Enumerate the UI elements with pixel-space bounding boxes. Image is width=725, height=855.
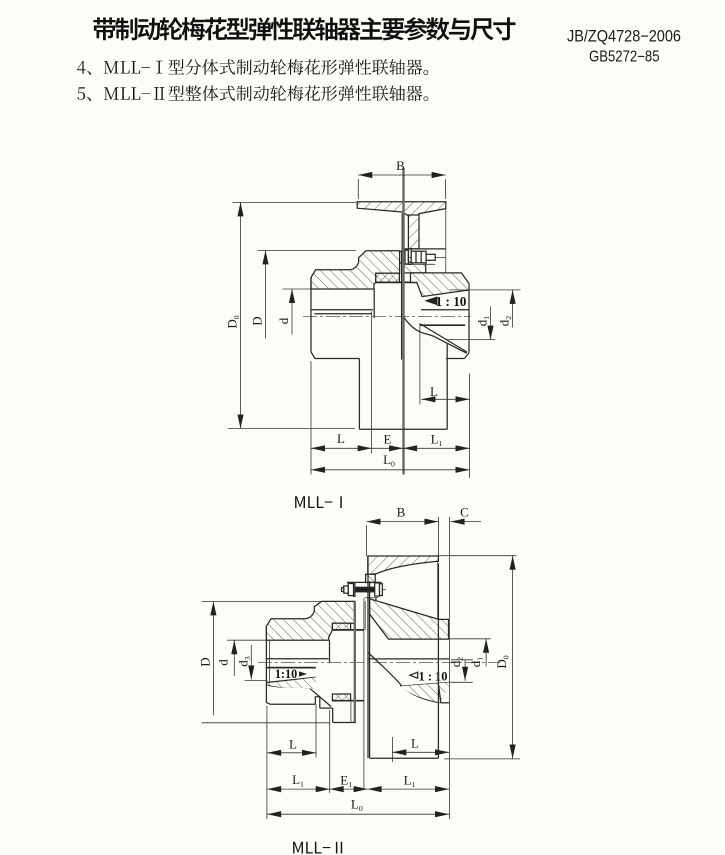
svg-text:1 : 10: 1 : 10 [436, 294, 467, 309]
svg-text:L1: L1 [292, 772, 304, 789]
svg-text:GB5272−85: GB5272−85 [589, 48, 660, 65]
svg-text:C: C [460, 505, 469, 520]
svg-text:d2: d2 [448, 657, 465, 668]
svg-text:L0: L0 [383, 452, 395, 469]
svg-text:D: D [250, 316, 265, 325]
svg-text:L0: L0 [351, 797, 363, 814]
svg-text:D0: D0 [494, 655, 511, 668]
svg-text:1 : 10: 1 : 10 [419, 670, 448, 684]
svg-text:L: L [411, 735, 419, 750]
svg-text:d: d [276, 317, 291, 324]
svg-text:B: B [397, 505, 406, 520]
svg-text:D0: D0 [225, 315, 242, 328]
svg-text:D: D [198, 657, 213, 666]
svg-text:B: B [396, 158, 405, 173]
svg-text:1:10: 1:10 [275, 667, 297, 681]
svg-text:d: d [215, 659, 230, 666]
svg-text:JB/ZQ4728−2006: JB/ZQ4728−2006 [567, 28, 681, 46]
svg-text:d3: d3 [236, 656, 253, 667]
svg-text:L: L [289, 737, 297, 752]
svg-text:E: E [384, 431, 392, 446]
svg-text:d1: d1 [475, 316, 492, 327]
svg-text:E1: E1 [340, 772, 352, 789]
svg-text:d2: d2 [497, 316, 514, 327]
svg-text:L1: L1 [431, 431, 443, 448]
svg-text:d1: d1 [468, 657, 485, 668]
svg-text:L: L [337, 431, 345, 446]
svg-text:L1: L1 [404, 772, 416, 789]
svg-text:L: L [430, 384, 438, 399]
